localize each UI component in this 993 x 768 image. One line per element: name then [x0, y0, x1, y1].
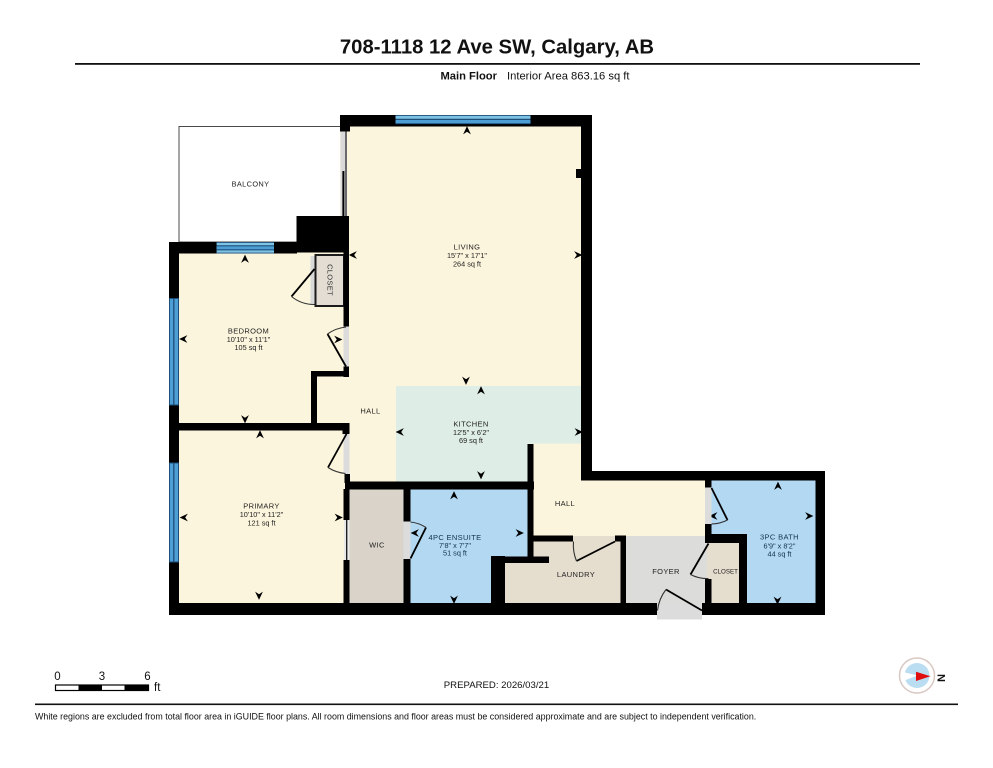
svg-text:6: 6 — [144, 671, 150, 683]
svg-text:CLOSET: CLOSET — [713, 568, 738, 575]
svg-text:Interior Area 863.16 sq ft: Interior Area 863.16 sq ft — [507, 71, 630, 83]
svg-text:121 sq ft: 121 sq ft — [248, 518, 276, 527]
svg-text:51 sq ft: 51 sq ft — [443, 549, 467, 558]
svg-text:BALCONY: BALCONY — [232, 180, 270, 189]
svg-text:3: 3 — [99, 671, 105, 683]
svg-text:69 sq ft: 69 sq ft — [459, 436, 483, 445]
svg-text:Main Floor: Main Floor — [440, 71, 497, 83]
svg-text:105 sq ft: 105 sq ft — [235, 343, 263, 352]
svg-text:ft: ft — [154, 682, 161, 694]
svg-text:WIC: WIC — [369, 541, 385, 550]
svg-text:264 sq ft: 264 sq ft — [453, 259, 481, 268]
svg-text:0: 0 — [54, 671, 60, 683]
svg-text:PREPARED: 2026/03/21: PREPARED: 2026/03/21 — [444, 680, 549, 691]
svg-text:HALL: HALL — [360, 407, 380, 416]
svg-text:3PC BATH: 3PC BATH — [760, 533, 799, 542]
svg-text:White regions are excluded fro: White regions are excluded from total fl… — [35, 712, 756, 722]
svg-text:CLOSET: CLOSET — [326, 264, 335, 296]
svg-text:N: N — [935, 674, 947, 682]
svg-text:708-1118 12 Ave SW, Calgary, A: 708-1118 12 Ave SW, Calgary, AB — [340, 37, 654, 59]
svg-text:44 sq ft: 44 sq ft — [768, 550, 792, 559]
svg-text:HALL: HALL — [555, 499, 575, 508]
svg-text:LAUNDRY: LAUNDRY — [557, 570, 595, 579]
svg-text:FOYER: FOYER — [652, 567, 680, 576]
